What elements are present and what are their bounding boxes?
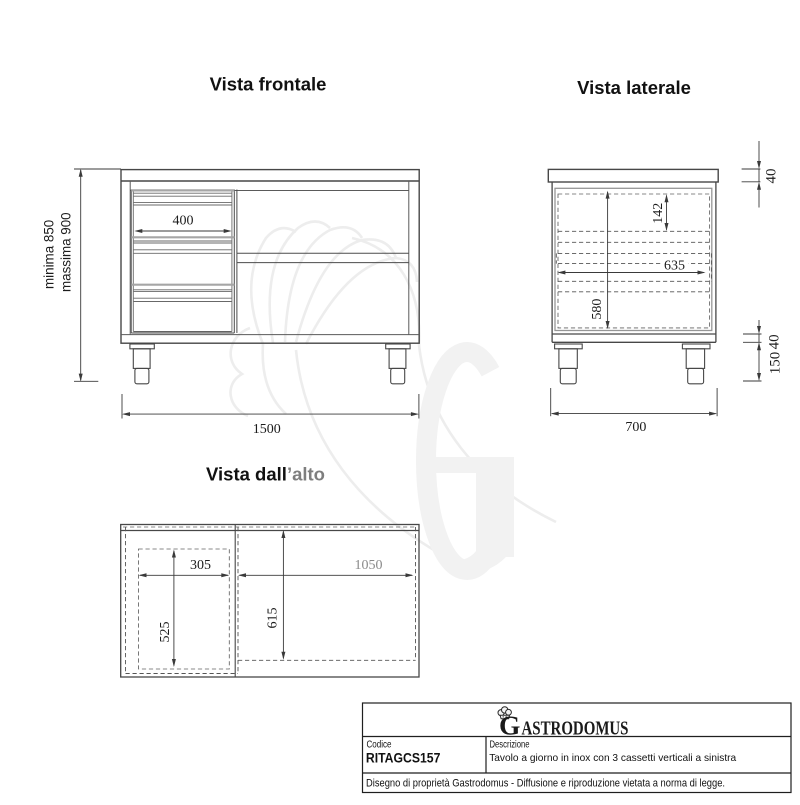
svg-text:Vista frontale: Vista frontale bbox=[210, 74, 327, 95]
svg-text:305: 305 bbox=[190, 558, 211, 573]
svg-text:1500: 1500 bbox=[253, 422, 281, 437]
svg-text:Tavolo a giorno in inox con 3: Tavolo a giorno in inox con 3 cassetti v… bbox=[489, 752, 736, 764]
svg-text:Descrizione: Descrizione bbox=[490, 740, 530, 751]
svg-text:1050: 1050 bbox=[355, 558, 383, 573]
svg-text:525: 525 bbox=[158, 622, 173, 643]
svg-text:40: 40 bbox=[767, 334, 783, 349]
svg-text:40: 40 bbox=[764, 169, 780, 184]
svg-text:ASTRODOMUS: ASTRODOMUS bbox=[522, 718, 629, 739]
svg-text:615: 615 bbox=[266, 608, 281, 629]
svg-text:400: 400 bbox=[173, 214, 194, 229]
svg-text:Codice: Codice bbox=[367, 740, 392, 751]
svg-text:RITAGCS157: RITAGCS157 bbox=[366, 751, 441, 766]
svg-text:G: G bbox=[499, 709, 520, 740]
svg-text:Vista laterale: Vista laterale bbox=[577, 77, 691, 98]
svg-text:142: 142 bbox=[651, 203, 666, 224]
svg-text:635: 635 bbox=[664, 258, 685, 273]
svg-text:150: 150 bbox=[768, 352, 784, 375]
svg-text:580: 580 bbox=[590, 299, 605, 320]
svg-text:Disegno di proprietà Gastrodom: Disegno di proprietà Gastrodomus - Diffu… bbox=[366, 778, 725, 790]
svg-text:minima 850: minima 850 bbox=[42, 220, 57, 289]
svg-text:700: 700 bbox=[625, 420, 646, 435]
svg-text:massima 900: massima 900 bbox=[59, 212, 74, 292]
svg-text:Vista dall’alto: Vista dall’alto bbox=[206, 464, 325, 485]
